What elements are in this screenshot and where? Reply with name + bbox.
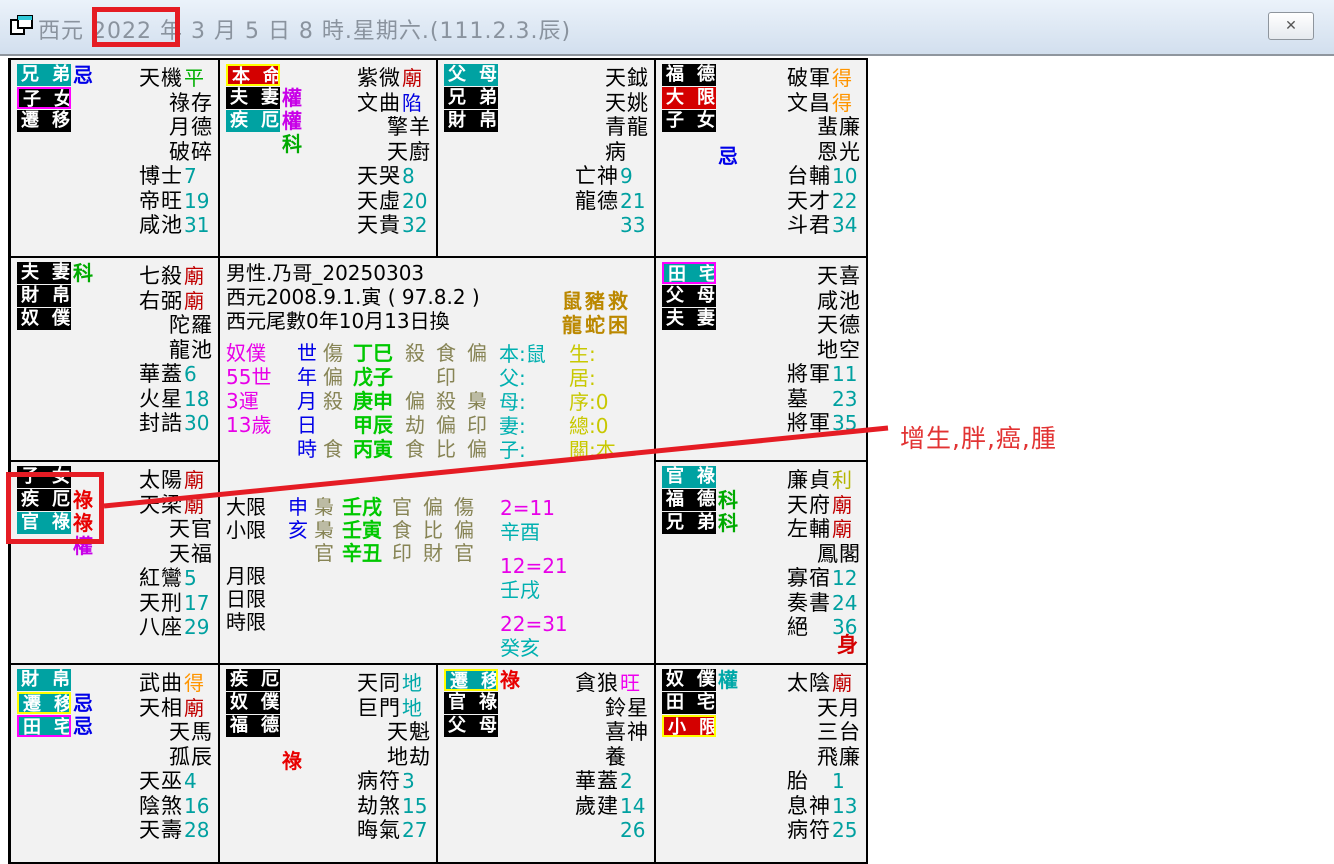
star-name: 晦氣 xyxy=(357,818,402,842)
star-row: 帝旺19 xyxy=(139,189,214,213)
limit-god: 偏 xyxy=(454,519,474,541)
star-row: 七殺廟 xyxy=(139,264,214,288)
star-suffix: 24 xyxy=(832,591,862,615)
limit-label: 日限 xyxy=(226,588,266,610)
star-row: 天德 xyxy=(817,313,862,337)
decade-range: 22=31 xyxy=(500,613,568,635)
star-name: 恩光 xyxy=(817,140,862,164)
star-row: 破碎 xyxy=(169,140,214,164)
star-name: 將軍 xyxy=(787,362,832,386)
star-name: 太陰 xyxy=(787,671,832,695)
star-row: 廉貞利 xyxy=(787,468,862,492)
hua-marker: 權 xyxy=(718,669,738,692)
family-line: 母: xyxy=(499,391,526,413)
palace-label: 子女 xyxy=(17,87,71,109)
star-name: 三台 xyxy=(817,720,862,744)
limit-god-left: 官 xyxy=(314,542,334,564)
star-suffix: 陷 xyxy=(402,91,432,115)
star-suffix: 14 xyxy=(620,794,650,818)
star-name: 青龍 xyxy=(605,115,650,139)
star-suffix: 廟 xyxy=(184,493,214,517)
star-suffix: 31 xyxy=(184,213,214,237)
star-row: 寡宿12 xyxy=(787,566,862,590)
star-row: 紅鸞5 xyxy=(139,566,214,590)
palace-label: 父母 xyxy=(444,64,498,86)
hua-marker: 忌 xyxy=(73,692,93,715)
palace-label: 兄弟 xyxy=(444,87,498,109)
star-suffix: 地 xyxy=(402,671,432,695)
star-suffix: 33 xyxy=(620,213,650,237)
star-row: 墓23 xyxy=(787,387,862,411)
pillar-god: 印 xyxy=(436,366,456,388)
star-name: 天鉞 xyxy=(605,66,650,90)
star-suffix: 32 xyxy=(402,213,432,237)
star-row: 天機平 xyxy=(139,66,214,90)
star-suffix: 廟 xyxy=(184,468,214,492)
palace-label: 兄弟 xyxy=(17,64,71,86)
pillar-cycle: 日 xyxy=(297,414,317,436)
pillar-god: 偏 xyxy=(436,414,456,436)
star-row: 胎1 xyxy=(787,769,862,793)
decade-pillar: 辛酉 xyxy=(500,521,540,543)
star-suffix: 29 xyxy=(184,615,214,639)
star-name: 天刑 xyxy=(139,591,184,615)
star-row: 右弼廟 xyxy=(139,289,214,313)
star-name: 天官 xyxy=(169,517,214,541)
star-row: 博士7 xyxy=(139,164,214,188)
star-row: 病符3 xyxy=(357,769,432,793)
palace-cell-6[interactable]: 田宅父母夫妻天喜咸池天德地空將軍11墓23將軍35 xyxy=(654,256,868,462)
star-name: 咸池 xyxy=(817,289,862,313)
star-row: 天喜 xyxy=(817,264,862,288)
center-panel: 男性.乃哥_20250303西元2008.9.1.寅 ( 97.8.2 )西元尾… xyxy=(218,256,656,665)
star-name xyxy=(575,818,620,842)
pillar-age-label: 55世 xyxy=(226,366,271,388)
star-row: 天相廟 xyxy=(139,696,214,720)
star-row: 天刑17 xyxy=(139,591,214,615)
hua-marker: 科 xyxy=(73,262,93,285)
star-name: 右弼 xyxy=(139,289,184,313)
star-name: 廉貞 xyxy=(787,468,832,492)
palace-label: 田宅 xyxy=(662,262,716,284)
star-row: 火星18 xyxy=(139,387,214,411)
palace-label: 父母 xyxy=(444,715,498,737)
palace-label: 財帛 xyxy=(444,110,498,132)
star-name: 天梁 xyxy=(139,493,184,517)
star-row: 左輔廟 xyxy=(787,517,862,541)
hua-marker: 科 xyxy=(282,133,302,156)
star-row: 地空 xyxy=(817,338,862,362)
star-row: 擎羊 xyxy=(387,115,432,139)
hua-marker: 忌 xyxy=(718,145,738,168)
pillar-god: 偏 xyxy=(467,438,487,460)
star-name: 絕 xyxy=(787,615,832,639)
fate-note-line: 鼠豬救 xyxy=(562,290,631,312)
pillar-stem-branch: 戊子 xyxy=(353,366,393,388)
star-name: 病符 xyxy=(787,818,832,842)
star-row: 天廚 xyxy=(387,140,432,164)
annotation-text: 增生,胖,癌,腫 xyxy=(900,419,1057,455)
decade-pillar: 癸亥 xyxy=(500,637,540,659)
pillar-cycle: 時 xyxy=(297,438,317,460)
pillar-age-label: 13歲 xyxy=(226,414,271,436)
star-name: 龍池 xyxy=(169,338,214,362)
star-name: 天魁 xyxy=(387,720,432,744)
star-name: 月德 xyxy=(169,115,214,139)
hua-marker: 祿 xyxy=(500,669,520,692)
annotation-box-palace xyxy=(6,472,104,544)
palace-cell-8[interactable]: 官祿福德兄弟科科廉貞利天府廟左輔廟鳳閣寡宿12奏書24絕36身 xyxy=(654,460,868,665)
star-name: 養 xyxy=(605,745,650,769)
star-name: 天相 xyxy=(139,696,184,720)
pillar-age-label: 奴僕 xyxy=(226,342,266,364)
palace-label: 疾厄 xyxy=(226,110,280,132)
star-name: 鳳閣 xyxy=(817,542,862,566)
star-name: 天姚 xyxy=(605,91,650,115)
chart-info-line: 男性.乃哥_20250303 xyxy=(226,262,424,284)
limit-label: 小限 xyxy=(226,519,266,541)
star-row: 華蓋2 xyxy=(575,769,650,793)
pillar-god: 梟 xyxy=(467,390,487,412)
palace-label: 小限 xyxy=(662,715,716,737)
star-row: 將軍11 xyxy=(787,362,862,386)
star-name: 孤辰 xyxy=(169,745,214,769)
pillar-god-left: 偏 xyxy=(323,366,343,388)
star-row: 天鉞 xyxy=(605,66,650,90)
palace-cell-9[interactable]: 財帛遷移田宅忌忌武曲得天相廟天馬孤辰天巫4陰煞16天壽28 xyxy=(8,663,220,864)
star-name: 文曲 xyxy=(357,91,402,115)
star-name: 咸池 xyxy=(139,213,184,237)
star-row: 亡神9 xyxy=(575,164,650,188)
palace-label: 夫妻 xyxy=(17,262,71,284)
star-name: 破碎 xyxy=(169,140,214,164)
pillar-age-label: 3運 xyxy=(226,390,259,412)
star-suffix: 34 xyxy=(832,213,862,237)
palace-label: 福德 xyxy=(662,64,716,86)
pillar-god: 偏 xyxy=(467,342,487,364)
limit-stem-branch: 壬戌 xyxy=(342,496,382,518)
star-row: 天月 xyxy=(817,696,862,720)
limit-god: 財 xyxy=(423,542,443,564)
star-suffix: 廟 xyxy=(184,696,214,720)
status-line: 生: xyxy=(569,343,596,365)
hua-marker: 忌 xyxy=(73,715,93,738)
palace-label: 官祿 xyxy=(444,692,498,714)
star-row: 祿存 xyxy=(169,91,214,115)
star-suffix: 廟 xyxy=(184,289,214,313)
star-row: 天虛20 xyxy=(357,189,432,213)
star-name: 鈴星 xyxy=(605,696,650,720)
star-suffix: 廟 xyxy=(402,66,432,90)
star-name: 胎 xyxy=(787,769,832,793)
star-name: 紫微 xyxy=(357,66,402,90)
star-name: 喜神 xyxy=(605,720,650,744)
star-row: 青龍 xyxy=(605,115,650,139)
pillar-god: 殺 xyxy=(405,342,425,364)
pillar-god: 偏 xyxy=(405,390,425,412)
star-row: 將軍35 xyxy=(787,411,862,435)
limit-label: 月限 xyxy=(226,565,266,587)
palace-cell-5[interactable]: 夫妻財帛奴僕科七殺廟右弼廟陀羅龍池華蓋6火星18封誥30 xyxy=(8,256,220,462)
star-name: 天同 xyxy=(357,671,402,695)
star-row: 歲建14 xyxy=(575,794,650,818)
palace-cell-10[interactable]: 疾厄奴僕福德祿天同地巨門地天魁地劫病符3劫煞15晦氣27 xyxy=(218,663,438,864)
palace-label: 奴僕 xyxy=(226,692,280,714)
star-suffix: 23 xyxy=(832,387,862,411)
palace-cell-11[interactable]: 遷移官祿父母祿貪狼旺鈴星喜神養華蓋2歲建1426 xyxy=(436,663,656,864)
chart-info-line: 西元2008.9.1.寅 ( 97.8.2 ) xyxy=(226,286,480,308)
star-row: 33 xyxy=(575,213,650,237)
status-line: 總:0 xyxy=(569,415,608,437)
pillar-god-left: 食 xyxy=(323,438,343,460)
palace-label: 本命 xyxy=(226,64,280,86)
star-suffix: 2 xyxy=(620,769,650,793)
star-name: 華蓋 xyxy=(139,362,184,386)
star-suffix: 25 xyxy=(832,818,862,842)
star-name: 斗君 xyxy=(787,213,832,237)
chart-grid: 兄弟子女遷移忌天機平祿存月德破碎博士7帝旺19咸池31本命夫妻疾厄權權科紫微廟文… xyxy=(0,0,1334,864)
pillar-god: 食 xyxy=(436,342,456,364)
star-row: 貪狼旺 xyxy=(575,671,650,695)
star-name: 地劫 xyxy=(387,745,432,769)
star-row: 咸池31 xyxy=(139,213,214,237)
star-suffix: 廟 xyxy=(832,671,862,695)
star-name: 天府 xyxy=(787,493,832,517)
star-name: 天德 xyxy=(817,313,862,337)
pillar-cycle: 年 xyxy=(297,366,317,388)
palace-label: 疾厄 xyxy=(226,669,280,691)
star-name xyxy=(575,213,620,237)
star-name: 帝旺 xyxy=(139,189,184,213)
star-row: 月德 xyxy=(169,115,214,139)
star-row: 天壽28 xyxy=(139,818,214,842)
palace-label: 官祿 xyxy=(662,466,716,488)
decade-pillar: 壬戌 xyxy=(500,579,540,601)
palace-label: 田宅 xyxy=(17,715,71,737)
star-name: 華蓋 xyxy=(575,769,620,793)
star-name: 劫煞 xyxy=(357,794,402,818)
star-row: 破軍得 xyxy=(787,66,862,90)
star-row: 封誥30 xyxy=(139,411,214,435)
star-name: 墓 xyxy=(787,387,832,411)
star-row: 天貴32 xyxy=(357,213,432,237)
star-row: 太陽廟 xyxy=(139,468,214,492)
star-name: 左輔 xyxy=(787,517,832,541)
star-row: 斗君34 xyxy=(787,213,862,237)
star-name: 天貴 xyxy=(357,213,402,237)
star-row: 蜚廉 xyxy=(817,115,862,139)
star-suffix: 15 xyxy=(402,794,432,818)
star-row: 紫微廟 xyxy=(357,66,432,90)
limit-god: 比 xyxy=(423,519,443,541)
star-suffix: 30 xyxy=(184,411,214,435)
palace-label: 財帛 xyxy=(17,669,71,691)
star-suffix: 平 xyxy=(184,66,214,90)
star-name: 擎羊 xyxy=(387,115,432,139)
star-row: 咸池 xyxy=(817,289,862,313)
star-suffix: 旺 xyxy=(620,671,650,695)
star-suffix: 11 xyxy=(832,362,862,386)
star-name: 巨門 xyxy=(357,696,402,720)
star-name: 文昌 xyxy=(787,91,832,115)
star-suffix: 得 xyxy=(184,671,214,695)
star-row: 華蓋6 xyxy=(139,362,214,386)
star-suffix: 3 xyxy=(402,769,432,793)
star-suffix: 4 xyxy=(184,769,214,793)
hua-marker: 祿 xyxy=(282,750,302,773)
limit-god: 印 xyxy=(392,542,412,564)
palace-cell-2[interactable]: 本命夫妻疾厄權權科紫微廟文曲陷擎羊天廚天哭8天虛20天貴32 xyxy=(218,58,438,258)
pillar-cycle: 月 xyxy=(297,390,317,412)
family-line: 妻: xyxy=(499,415,526,437)
palace-label: 福德 xyxy=(226,715,280,737)
palace-label: 子女 xyxy=(662,110,716,132)
limit-god: 食 xyxy=(392,519,412,541)
star-suffix: 得 xyxy=(832,91,862,115)
hua-marker: 忌 xyxy=(73,64,93,87)
star-row: 武曲得 xyxy=(139,671,214,695)
star-name: 祿存 xyxy=(169,91,214,115)
palace-label: 奴僕 xyxy=(17,308,71,330)
star-suffix: 7 xyxy=(184,164,214,188)
star-name: 天福 xyxy=(169,542,214,566)
star-name: 寡宿 xyxy=(787,566,832,590)
palace-label: 遷移 xyxy=(17,692,71,714)
palace-cell-3[interactable]: 父母兄弟財帛天鉞天姚青龍病亡神9龍德2133 xyxy=(436,58,656,258)
star-suffix: 8 xyxy=(402,164,432,188)
pillar-god: 殺 xyxy=(436,390,456,412)
limit-branch: 亥 xyxy=(288,519,308,541)
pillar-god: 印 xyxy=(467,414,487,436)
palace-label: 奴僕 xyxy=(662,669,716,691)
star-row: 病符25 xyxy=(787,818,862,842)
star-row: 天府廟 xyxy=(787,493,862,517)
star-suffix: 5 xyxy=(184,566,214,590)
star-suffix: 18 xyxy=(184,387,214,411)
star-row: 文昌得 xyxy=(787,91,862,115)
star-name: 天廚 xyxy=(387,140,432,164)
star-suffix: 19 xyxy=(184,189,214,213)
palace-label: 遷移 xyxy=(444,669,498,691)
pillar-god-left: 傷 xyxy=(323,342,343,364)
hua-marker: 權 xyxy=(282,87,302,110)
star-row: 天魁 xyxy=(387,720,432,744)
pillar-stem-branch: 丙寅 xyxy=(353,438,393,460)
star-name: 天喜 xyxy=(817,264,862,288)
status-line: 居: xyxy=(569,367,596,389)
star-suffix: 利 xyxy=(832,468,862,492)
family-line: 父: xyxy=(499,367,526,389)
hua-marker: 科 xyxy=(718,512,738,535)
star-row: 陀羅 xyxy=(169,313,214,337)
star-row: 龍池 xyxy=(169,338,214,362)
star-row: 台輔10 xyxy=(787,164,862,188)
star-row: 天官 xyxy=(169,517,214,541)
star-name: 亡神 xyxy=(575,164,620,188)
decade-range: 2=11 xyxy=(500,497,555,519)
star-row: 龍德21 xyxy=(575,189,650,213)
pillar-god: 食 xyxy=(405,438,425,460)
palace-cell-4[interactable]: 福德大限子女忌破軍得文昌得蜚廉恩光台輔10天才22斗君34 xyxy=(654,58,868,258)
star-name: 武曲 xyxy=(139,671,184,695)
limit-god: 官 xyxy=(454,542,474,564)
star-row: 喜神 xyxy=(605,720,650,744)
star-name: 火星 xyxy=(139,387,184,411)
palace-label: 大限 xyxy=(662,87,716,109)
star-row: 天才22 xyxy=(787,189,862,213)
star-name: 天月 xyxy=(817,696,862,720)
status-line: 序:0 xyxy=(569,391,608,413)
star-suffix: 廟 xyxy=(832,493,862,517)
palace-label: 兄弟 xyxy=(662,512,716,534)
star-name: 天巫 xyxy=(139,769,184,793)
star-suffix: 26 xyxy=(620,818,650,842)
fate-note-line: 龍蛇困 xyxy=(562,314,631,336)
palace-label: 田宅 xyxy=(662,692,716,714)
star-name: 八座 xyxy=(139,615,184,639)
star-row: 天巫4 xyxy=(139,769,214,793)
star-row: 息神13 xyxy=(787,794,862,818)
star-suffix: 得 xyxy=(832,66,862,90)
star-row: 天梁廟 xyxy=(139,493,214,517)
hua-marker: 科 xyxy=(718,489,738,512)
star-name: 博士 xyxy=(139,164,184,188)
star-row: 晦氣27 xyxy=(357,818,432,842)
star-row: 26 xyxy=(575,818,650,842)
star-row: 恩光 xyxy=(817,140,862,164)
family-line: 本:鼠 xyxy=(499,343,546,365)
annotation-box-year xyxy=(92,7,180,47)
star-suffix: 廟 xyxy=(832,517,862,541)
pillar-god: 比 xyxy=(436,438,456,460)
pillar-stem-branch: 丁巳 xyxy=(353,342,393,364)
star-row: 天姚 xyxy=(605,91,650,115)
pillar-god-left: 殺 xyxy=(323,390,343,412)
limit-stem-branch: 辛丑 xyxy=(342,542,382,564)
star-name: 天壽 xyxy=(139,818,184,842)
limit-label: 大限 xyxy=(226,496,266,518)
limit-god-left: 梟 xyxy=(314,519,334,541)
star-suffix: 27 xyxy=(402,818,432,842)
star-row: 文曲陷 xyxy=(357,91,432,115)
limit-god: 官 xyxy=(392,496,412,518)
star-suffix: 35 xyxy=(832,411,862,435)
star-suffix: 10 xyxy=(832,164,862,188)
star-name: 破軍 xyxy=(787,66,832,90)
star-suffix: 廟 xyxy=(184,264,214,288)
limit-stem-branch: 壬寅 xyxy=(342,519,382,541)
pillar-cycle: 世 xyxy=(297,342,317,364)
star-row: 病 xyxy=(605,140,650,164)
star-suffix: 12 xyxy=(832,566,862,590)
star-name: 太陽 xyxy=(139,468,184,492)
star-name: 奏書 xyxy=(787,591,832,615)
star-suffix: 21 xyxy=(620,189,650,213)
star-row: 地劫 xyxy=(387,745,432,769)
star-row: 天福 xyxy=(169,542,214,566)
star-name: 貪狼 xyxy=(575,671,620,695)
star-suffix: 16 xyxy=(184,794,214,818)
palace-cell-1[interactable]: 兄弟子女遷移忌天機平祿存月德破碎博士7帝旺19咸池31 xyxy=(8,58,220,258)
star-name: 病符 xyxy=(357,769,402,793)
star-row: 三台 xyxy=(817,720,862,744)
pillar-stem-branch: 甲辰 xyxy=(353,414,393,436)
palace-cell-12[interactable]: 奴僕田宅小限權太陰廟天月三台飛廉胎1息神13病符25 xyxy=(654,663,868,864)
star-suffix: 22 xyxy=(832,189,862,213)
star-suffix: 28 xyxy=(184,818,214,842)
star-row: 奏書24 xyxy=(787,591,862,615)
star-suffix: 20 xyxy=(402,189,432,213)
